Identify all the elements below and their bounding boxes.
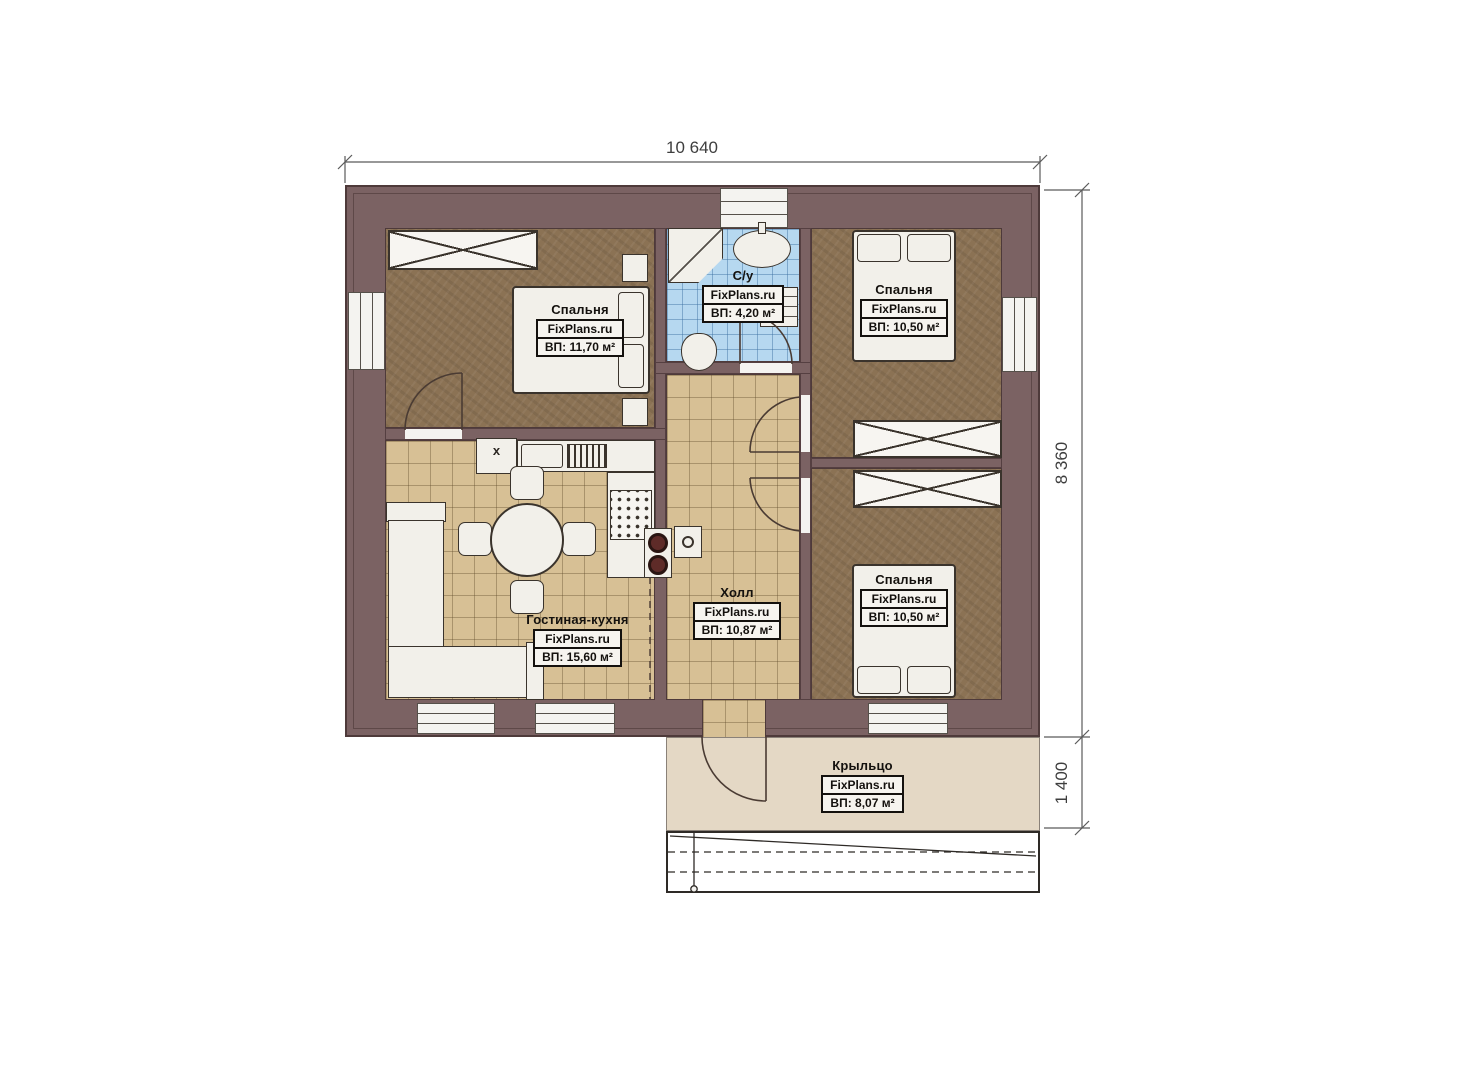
room-area: ВП: 15,60 м²: [535, 649, 620, 665]
brand-watermark: FixPlans.ru: [704, 287, 783, 305]
room-area: ВП: 10,87 м²: [695, 622, 780, 638]
sink-tap: [758, 222, 766, 234]
hob-burner-a: [648, 533, 668, 553]
pillow-bedroom3-a: [857, 666, 901, 694]
brand-watermark: FixPlans.ru: [823, 777, 902, 795]
bedroom1-door-opening: [405, 428, 462, 440]
label-hall: Холл FixPlans.ru ВП: 10,87 м²: [676, 585, 798, 640]
pillow-bedroom3-b: [907, 666, 951, 694]
window-bottom-living-1: [417, 703, 495, 734]
label-living-kitchen: Гостиная-кухня FixPlans.ru ВП: 15,60 м²: [505, 612, 650, 667]
window-bottom-living-2: [535, 703, 615, 734]
wall-center-right: [800, 228, 811, 700]
room-name: Спальня: [518, 302, 642, 317]
pillow-bedroom2-b: [907, 234, 951, 262]
bedroom3-door-opening: [800, 478, 811, 533]
wardrobe-bedroom3: [853, 470, 1002, 508]
wardrobe-bedroom1: [388, 230, 538, 270]
room-area: ВП: 4,20 м²: [704, 305, 783, 321]
floor-plan: x Спальня FixPlans.ru ВП: 11,70 м² С/у F…: [0, 0, 1473, 1080]
toilet: [681, 333, 717, 371]
window-bottom-bedroom3: [868, 703, 948, 734]
sofa-seat-vertical: [388, 520, 444, 648]
kitchen-appliance-knob: [682, 536, 694, 548]
room-name: Гостиная-кухня: [505, 612, 650, 627]
dining-chair-right: [562, 522, 596, 556]
dimension-porch-label: 1 400: [1050, 738, 1074, 828]
label-bathroom: С/у FixPlans.ru ВП: 4,20 м²: [688, 268, 798, 323]
room-name: Крыльцо: [800, 758, 925, 773]
washer-slot-mark: x: [476, 443, 517, 458]
nightstand-bedroom1-a: [622, 254, 648, 282]
kitchen-sink: [521, 444, 563, 468]
hob-burner-b: [648, 555, 668, 575]
label-box: FixPlans.ru ВП: 4,20 м²: [702, 285, 785, 323]
sofa-armrest-top: [386, 502, 446, 522]
window-top: [720, 188, 788, 228]
room-name: Холл: [676, 585, 798, 600]
label-box: FixPlans.ru ВП: 10,87 м²: [693, 602, 782, 640]
label-box: FixPlans.ru ВП: 11,70 м²: [536, 319, 624, 357]
nightstand-bedroom1-b: [622, 398, 648, 426]
dining-table: [490, 503, 564, 577]
pillow-bedroom2-a: [857, 234, 901, 262]
label-bedroom-bottom-right: Спальня FixPlans.ru ВП: 10,50 м²: [846, 572, 962, 627]
bathroom-door-opening: [740, 362, 792, 374]
label-box: FixPlans.ru ВП: 10,50 м²: [860, 299, 949, 337]
dining-chair-bottom: [510, 580, 544, 614]
dining-chair-top: [510, 466, 544, 500]
brand-watermark: FixPlans.ru: [538, 321, 622, 339]
room-name: Спальня: [846, 282, 962, 297]
room-name: Спальня: [846, 572, 962, 587]
window-left-bedroom1: [348, 292, 385, 370]
brand-watermark: FixPlans.ru: [695, 604, 780, 622]
dimension-height-label: 8 360: [1050, 418, 1074, 508]
bathroom-sink: [733, 230, 791, 268]
wardrobe-bedroom2: [853, 420, 1002, 458]
label-box: FixPlans.ru ВП: 15,60 м²: [533, 629, 622, 667]
room-area: ВП: 10,50 м²: [862, 319, 947, 335]
entrance-threshold: [702, 700, 766, 737]
label-box: FixPlans.ru ВП: 10,50 м²: [860, 589, 949, 627]
dimension-width-label: 10 640: [612, 138, 772, 158]
label-bedroom-top-left: Спальня FixPlans.ru ВП: 11,70 м²: [518, 302, 642, 357]
room-area: ВП: 11,70 м²: [538, 339, 622, 355]
brand-watermark: FixPlans.ru: [535, 631, 620, 649]
dining-chair-left: [458, 522, 492, 556]
dish-rack: [567, 444, 607, 468]
brand-watermark: FixPlans.ru: [862, 591, 947, 609]
wall-between-right-bedrooms: [811, 458, 1002, 468]
label-bedroom-top-right: Спальня FixPlans.ru ВП: 10,50 м²: [846, 282, 962, 337]
room-name: С/у: [688, 268, 798, 283]
room-area: ВП: 10,50 м²: [862, 609, 947, 625]
label-porch: Крыльцо FixPlans.ru ВП: 8,07 м²: [800, 758, 925, 813]
room-area: ВП: 8,07 м²: [823, 795, 902, 811]
label-box: FixPlans.ru ВП: 8,07 м²: [821, 775, 904, 813]
porch-steps: [666, 831, 1040, 893]
bedroom2-door-opening: [800, 395, 811, 452]
window-right-bedroom2: [1002, 297, 1037, 372]
brand-watermark: FixPlans.ru: [862, 301, 947, 319]
wall-left-center: [655, 228, 666, 575]
